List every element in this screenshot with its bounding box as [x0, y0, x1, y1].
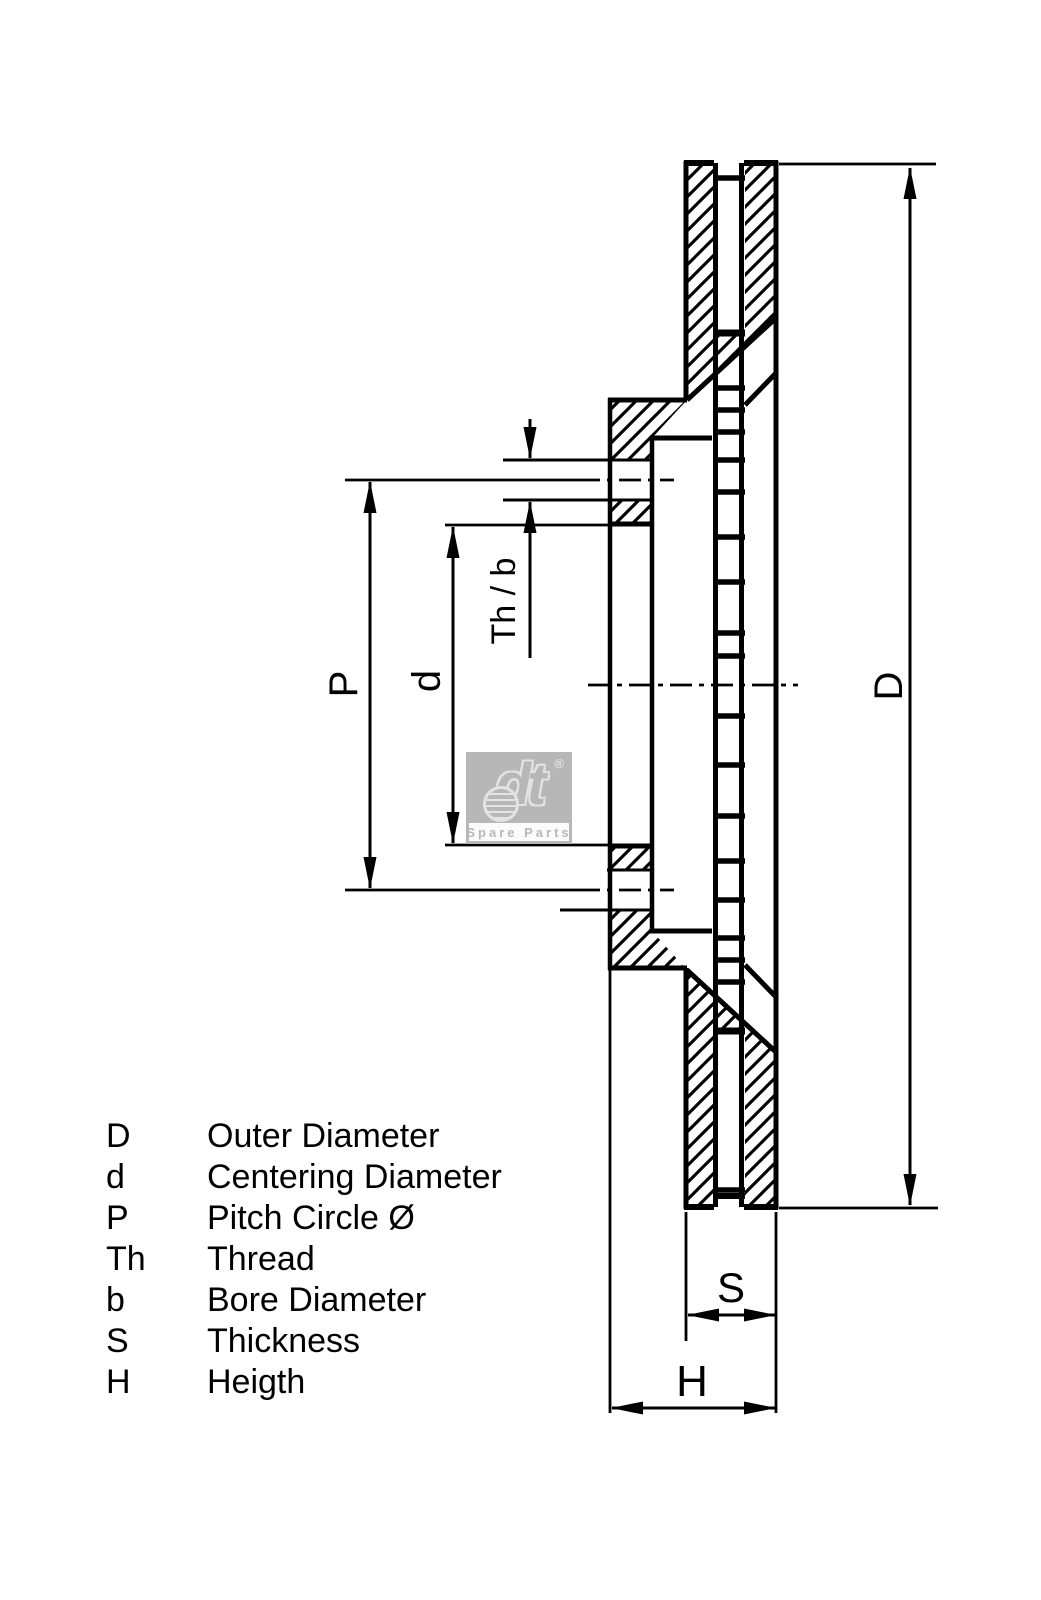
legend-row: b Bore Diameter	[106, 1280, 502, 1321]
right-ring-bottom-section	[745, 1024, 776, 1207]
legend-row: Th Thread	[106, 1239, 502, 1280]
flange-top-section	[610, 400, 687, 460]
legend-label: Bore Diameter	[207, 1280, 426, 1321]
flange-lower-box-section	[610, 846, 652, 870]
legend-label: Heigth	[207, 1362, 305, 1403]
legend-label: Thickness	[207, 1321, 360, 1362]
dim-label-outer-diameter: D	[869, 666, 909, 706]
legend-label: Outer Diameter	[207, 1116, 439, 1157]
dt-watermark: dt ® Spare Parts	[466, 752, 572, 844]
left-ring-bottom-section	[686, 970, 713, 1207]
flange-upper-box-section	[610, 500, 652, 524]
legend-symbol: d	[106, 1157, 207, 1198]
legend-row: P Pitch Circle Ø	[106, 1198, 502, 1239]
outer-diameter-leaders	[779, 164, 938, 1208]
legend-label: Centering Diameter	[207, 1157, 502, 1198]
legend-symbol: S	[106, 1321, 207, 1362]
legend: D Outer Diameter d Centering Diameter P …	[106, 1116, 502, 1403]
dim-label-thickness: S	[711, 1268, 751, 1308]
legend-row: H Heigth	[106, 1362, 502, 1403]
legend-symbol: Th	[106, 1239, 207, 1280]
flange-bottom-section	[610, 910, 687, 970]
watermark-tagline: Spare Parts	[469, 823, 569, 841]
legend-symbol: D	[106, 1116, 207, 1157]
legend-symbol: b	[106, 1280, 207, 1321]
technical-drawing-page: dt ® Spare Parts P d Th / b D S H D Oute…	[0, 0, 1041, 1600]
registered-trademark-icon: ®	[554, 756, 564, 771]
legend-symbol: P	[106, 1198, 207, 1239]
dim-label-height: H	[672, 1362, 712, 1402]
dim-label-centering-diameter: d	[407, 661, 447, 701]
left-ring-top-section	[686, 163, 713, 400]
legend-row: D Outer Diameter	[106, 1116, 502, 1157]
legend-symbol: H	[106, 1362, 207, 1403]
legend-label: Pitch Circle Ø	[207, 1198, 415, 1239]
dt-logo-globe-icon	[483, 786, 519, 822]
legend-row: S Thickness	[106, 1321, 502, 1362]
legend-label: Thread	[207, 1239, 315, 1280]
right-ring-top-section	[745, 163, 776, 346]
legend-row: d Centering Diameter	[106, 1157, 502, 1198]
dim-label-pitch-circle: P	[324, 664, 364, 704]
dim-label-thread-bore: Th / b	[484, 526, 524, 676]
